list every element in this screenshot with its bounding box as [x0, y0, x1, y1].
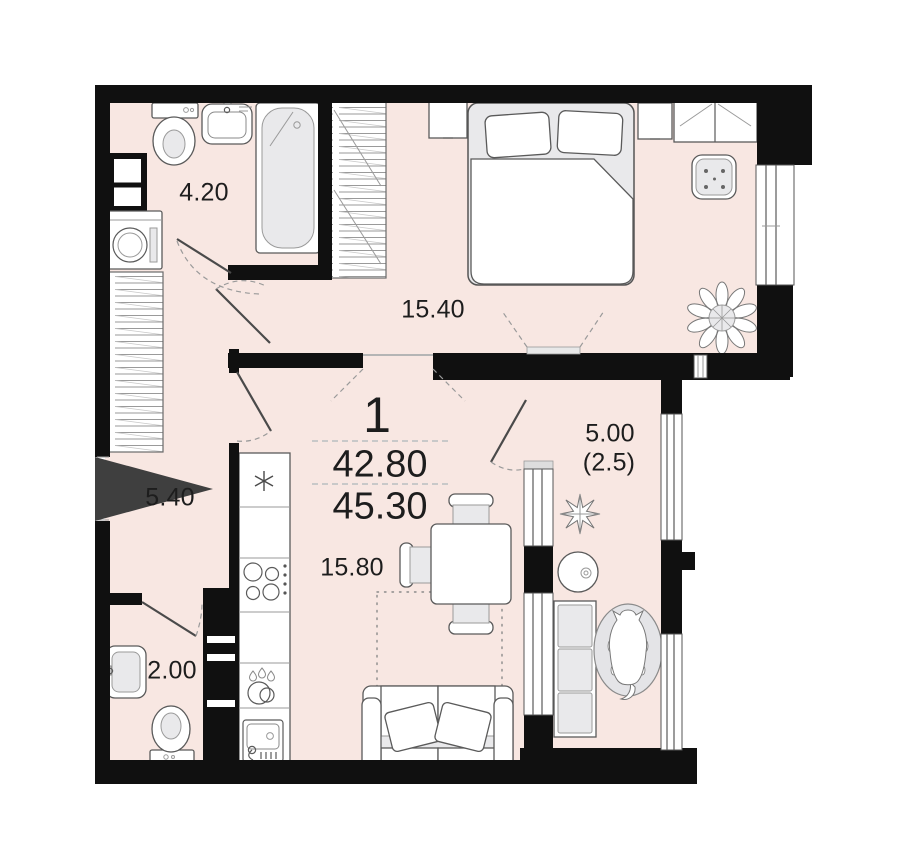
sofa-icon	[362, 686, 513, 768]
floor-plan-drawing	[0, 0, 900, 864]
duct-shaft-icon	[111, 156, 144, 209]
dining-table-icon	[431, 524, 511, 604]
kitchen-counter	[239, 453, 290, 765]
window-icon	[661, 414, 682, 540]
bathtub-icon	[256, 103, 320, 253]
nightstand-icon	[429, 101, 467, 138]
wardrobe-hangers-icon	[330, 102, 386, 278]
washing-machine-icon	[106, 211, 162, 269]
washbasin-icon	[202, 101, 252, 144]
rooms-count-label: 1	[363, 386, 391, 444]
floor-plan: 4.20 15.40 5.40 2.00 15.80 5.00 (2.5) 1 …	[0, 0, 900, 864]
toilet-icon	[152, 103, 198, 165]
total-area-label: 45.30	[332, 486, 427, 529]
divider-line	[312, 440, 448, 442]
wardrobe-icon	[674, 101, 757, 142]
living-area-label: 42.80	[332, 444, 427, 487]
window-icon	[694, 355, 707, 378]
nightstand-icon	[638, 103, 672, 139]
room-area-label-bathroom: 4.20	[179, 179, 228, 208]
room-area-label-bedroom: 15.40	[401, 296, 465, 325]
window-icon	[661, 634, 682, 750]
potted-plant-icon	[560, 494, 600, 534]
room-area-label-kitchen-living: 15.80	[320, 554, 384, 583]
room-area-label-balcony-reduced: (2.5)	[583, 449, 635, 478]
wardrobe-hangers-icon	[107, 272, 163, 452]
room-area-label-balcony: 5.00	[585, 420, 634, 449]
room-area-label-wc: 2.00	[147, 657, 196, 686]
window-icon	[756, 165, 794, 285]
room-area-label-hallway: 5.40	[145, 484, 194, 513]
pouf-icon	[692, 155, 736, 199]
round-table-icon	[558, 552, 598, 592]
balcony-bench-icon	[554, 601, 596, 737]
double-bed-icon	[468, 103, 634, 285]
